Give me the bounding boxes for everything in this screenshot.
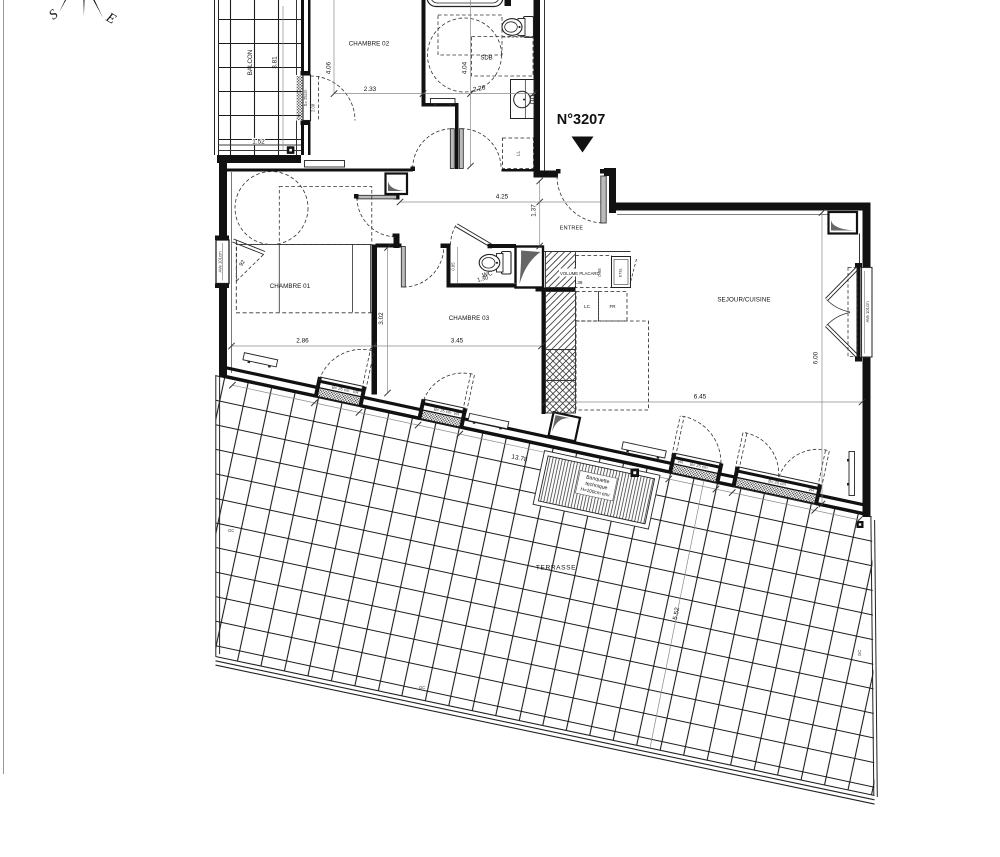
- svg-text:3.45: 3.45: [451, 338, 464, 345]
- svg-text:LC: LC: [584, 304, 591, 309]
- svg-text:6.45: 6.45: [694, 393, 707, 400]
- svg-text:GC: GC: [419, 685, 425, 690]
- svg-text:GC: GC: [857, 650, 862, 656]
- svg-text:4.04: 4.04: [462, 61, 469, 74]
- svg-text:2.86: 2.86: [296, 338, 309, 345]
- svg-text:FR: FR: [609, 304, 616, 309]
- svg-text:0.85: 0.85: [451, 262, 456, 271]
- svg-text:GC: GC: [228, 528, 234, 533]
- svg-text:SDB: SDB: [480, 56, 492, 62]
- svg-text:BALCON: BALCON: [247, 50, 254, 75]
- svg-text:VOLUME PLACARD: VOLUME PLACARD: [560, 271, 600, 276]
- svg-text:4.06: 4.06: [326, 61, 333, 74]
- svg-text:2.08: 2.08: [311, 103, 316, 112]
- svg-text:N°3207: N°3207: [557, 112, 606, 128]
- svg-text:TERRASSE: TERRASSE: [536, 565, 576, 572]
- svg-text:S= 25cm: S= 25cm: [303, 89, 308, 106]
- svg-text:6.00: 6.00: [813, 351, 820, 364]
- svg-text:1.37: 1.37: [531, 204, 538, 217]
- svg-text:SEJOUR/CUISINE: SEJOUR/CUISINE: [717, 297, 770, 304]
- svg-text:ETEL: ETEL: [619, 268, 623, 278]
- svg-text:CHAMBRE 02: CHAMBRE 02: [349, 41, 390, 48]
- svg-text:1.52: 1.52: [252, 139, 265, 146]
- svg-text:.38: .38: [576, 280, 583, 285]
- svg-text:CHAMBRE 01: CHAMBRE 01: [270, 283, 311, 290]
- svg-text:AVe 101cm: AVe 101cm: [218, 251, 223, 273]
- svg-text:3.81: 3.81: [272, 56, 279, 69]
- svg-text:2.33: 2.33: [364, 86, 377, 93]
- svg-text:CHAMBRE 03: CHAMBRE 03: [449, 315, 490, 322]
- svg-text:ENTREE: ENTREE: [560, 226, 584, 232]
- svg-text:4.25: 4.25: [496, 194, 509, 201]
- svg-text:LL: LL: [516, 151, 521, 157]
- svg-text:AVe 101cm: AVe 101cm: [865, 301, 870, 323]
- svg-text:3.02: 3.02: [378, 312, 385, 325]
- svg-text:0.98: 0.98: [597, 268, 602, 277]
